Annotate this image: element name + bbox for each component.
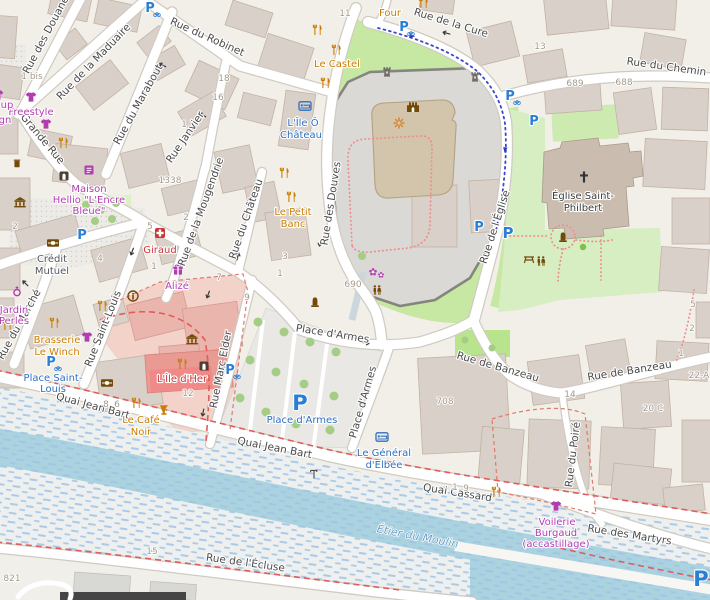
svg-text:Bleue": Bleue" xyxy=(73,206,106,217)
svg-text:18: 18 xyxy=(218,74,230,84)
parking-icon: P xyxy=(77,228,87,243)
svg-text:15: 15 xyxy=(146,547,157,557)
svg-text:20 C: 20 C xyxy=(643,404,664,414)
poi-label-maison-hellio: Maison xyxy=(71,184,106,195)
poi-label-le-castel: Le Castel xyxy=(314,59,360,70)
castle-tower-icon xyxy=(383,67,390,76)
svg-text:2: 2 xyxy=(689,324,695,334)
castle-keep xyxy=(372,100,456,198)
parking-icon: P xyxy=(529,114,539,129)
poi-label-fragment-up: up xyxy=(1,100,14,111)
poi-label-general-elbee: Le Général xyxy=(357,447,411,459)
svg-text:22-A: 22-A xyxy=(689,371,710,381)
poi-label-jardin-perles: Jardin xyxy=(0,305,28,316)
svg-text:2: 2 xyxy=(183,213,189,223)
svg-text:1338: 1338 xyxy=(159,176,182,186)
poi-label-petit-banc: Le Petit xyxy=(274,207,311,218)
svg-text:9: 9 xyxy=(463,484,469,494)
svg-text:4: 4 xyxy=(97,254,103,264)
svg-text:2: 2 xyxy=(12,222,18,232)
svg-text:3: 3 xyxy=(282,252,288,262)
svg-text:7: 7 xyxy=(216,273,222,283)
parking-icon: P xyxy=(145,1,155,16)
svg-text:11: 11 xyxy=(339,9,350,19)
poi-label-freestyle: Freestyle xyxy=(8,107,53,118)
bank-icon xyxy=(101,379,113,387)
svg-text:689: 689 xyxy=(566,79,583,89)
parking-icon: P xyxy=(399,20,409,35)
stationery-shop-icon xyxy=(85,166,94,175)
map-canvas[interactable]: P P P P P P P P P P P Rue des Douanes Ru… xyxy=(0,0,710,600)
svg-text:Le Winch: Le Winch xyxy=(34,347,79,358)
svg-text:1: 1 xyxy=(277,269,283,279)
svg-text:Banc: Banc xyxy=(281,219,306,230)
poi-label-place-saint-louis: Place Saint- xyxy=(24,373,83,384)
svg-text:9: 9 xyxy=(244,293,250,303)
castle-tower-icon xyxy=(471,72,478,81)
svg-text:6: 6 xyxy=(114,400,120,410)
svg-text:688: 688 xyxy=(615,78,632,88)
pharmacy-icon xyxy=(155,228,165,238)
svg-text:16: 16 xyxy=(212,93,224,103)
svg-text:1 bis: 1 bis xyxy=(21,72,43,82)
svg-text:Perles: Perles xyxy=(0,316,29,327)
poi-label-giraud: Giraud xyxy=(143,245,176,256)
parking-icon: P xyxy=(505,89,515,104)
poi-label-credit-mutuel: Crédit xyxy=(37,253,67,265)
svg-text:690: 690 xyxy=(344,280,361,290)
svg-text:1: 1 xyxy=(181,120,187,130)
building-dark-roof xyxy=(60,592,186,600)
svg-text:Hellio "L'Encre: Hellio "L'Encre xyxy=(53,195,125,206)
svg-text:Château: Château xyxy=(280,129,322,141)
svg-text:Louis: Louis xyxy=(40,384,66,395)
poi-label-cafe-noir: Le Café xyxy=(122,414,160,426)
parking-icon: P xyxy=(474,220,484,235)
svg-text:Philbert: Philbert xyxy=(564,203,603,214)
svg-text:5: 5 xyxy=(690,300,696,310)
parking-icon: P xyxy=(693,567,708,591)
parking-icon: P xyxy=(292,391,307,415)
svg-text:(accastillage): (accastillage) xyxy=(522,539,589,550)
poi-label-place-d-armes-parking: Place d'Armes xyxy=(267,415,338,426)
svg-text:821: 821 xyxy=(3,574,20,584)
poi-label-fragment-gn: gn xyxy=(0,115,11,126)
map-viewport[interactable]: P P P P P P P P P P P Rue des Douanes Ru… xyxy=(0,0,710,600)
poi-label-brasserie: Brasserie xyxy=(34,335,81,346)
svg-text:1: 1 xyxy=(678,349,684,359)
parking-icon: P xyxy=(503,224,514,242)
svg-text:d'Elbée: d'Elbée xyxy=(366,459,403,471)
poi-label-four: Four xyxy=(379,8,402,19)
poi-label-alize: Alizé xyxy=(165,280,189,292)
svg-text:Burgaud: Burgaud xyxy=(535,528,577,539)
shop-door-icon xyxy=(60,172,69,181)
svg-text:13: 13 xyxy=(534,42,545,52)
svg-text:5: 5 xyxy=(147,222,153,232)
svg-text:708: 708 xyxy=(436,397,453,407)
poi-label-ile-o-chateau: L'Île Ô xyxy=(287,116,318,129)
bank-icon xyxy=(47,239,59,247)
poi-label-ile-d-her: L'Île d'Her xyxy=(157,372,208,385)
svg-text:Noir: Noir xyxy=(131,427,152,438)
svg-text:14: 14 xyxy=(564,390,576,400)
poi-label-eglise: Église Saint- xyxy=(552,189,614,202)
shop-door-icon xyxy=(200,362,209,371)
svg-text:1: 1 xyxy=(452,483,458,493)
poi-label-voilerie: Voilerie xyxy=(539,517,576,528)
svg-text:Mutuel: Mutuel xyxy=(35,266,69,277)
svg-text:8: 8 xyxy=(103,400,109,410)
svg-text:12: 12 xyxy=(182,389,193,399)
svg-text:1: 1 xyxy=(151,262,157,272)
